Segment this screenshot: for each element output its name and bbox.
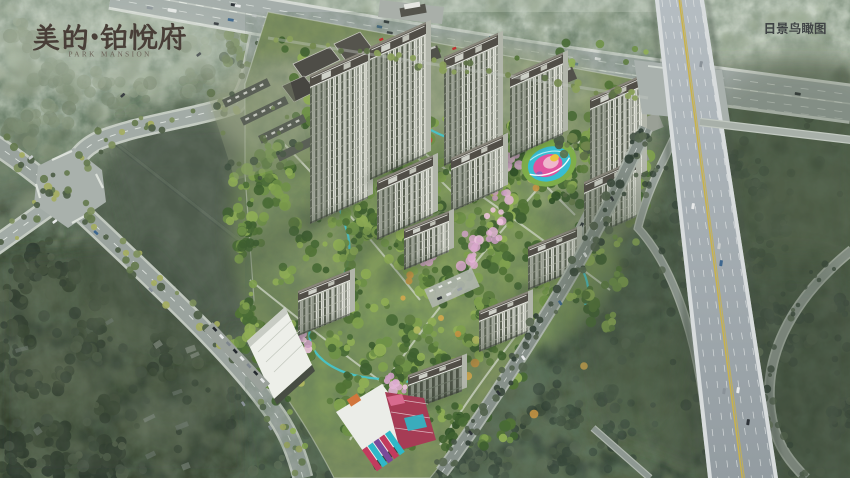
svg-text:PARK MANSION: PARK MANSION [69, 50, 152, 58]
